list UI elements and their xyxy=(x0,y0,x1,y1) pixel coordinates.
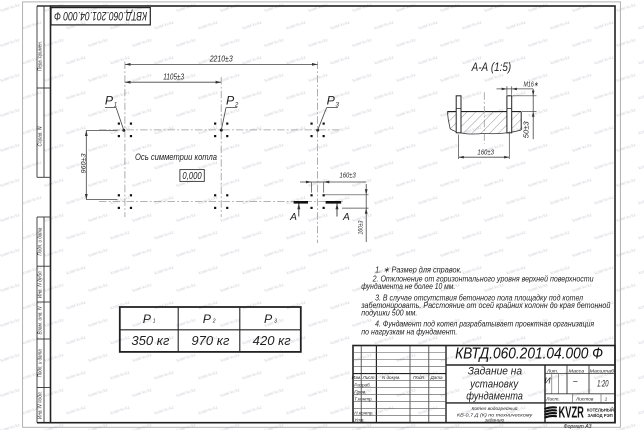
svg-text:А-А (1:5): А-А (1:5) xyxy=(471,60,511,74)
svg-text:50±3: 50±3 xyxy=(521,120,530,138)
svg-text:Справ. N: Справ. N xyxy=(37,126,43,146)
svg-text:160±3: 160±3 xyxy=(339,173,355,180)
svg-text:Задание на: Задание на xyxy=(468,366,522,378)
svg-text:М16∗: М16∗ xyxy=(524,80,539,89)
svg-text:Инв. N дубл.: Инв. N дубл. xyxy=(37,270,43,298)
svg-text:Дата: Дата xyxy=(429,375,443,380)
svg-text:Пров.: Пров. xyxy=(354,389,366,394)
svg-text:Подп. и дата: Подп. и дата xyxy=(37,349,43,377)
svg-text:Формат А3: Формат А3 xyxy=(564,424,592,430)
svg-text:P: P xyxy=(203,312,212,326)
svg-text:Перв. примен.: Перв. примен. xyxy=(37,41,43,71)
svg-text:Разраб.: Разраб. xyxy=(354,382,371,387)
svg-text:970 кг: 970 кг xyxy=(191,334,229,348)
svg-text:1. ∗ Размер для справок.: 1. ∗ Размер для справок. xyxy=(375,266,462,275)
svg-text:Подп.: Подп. xyxy=(413,375,425,380)
svg-text:Т.контр.: Т.контр. xyxy=(354,396,373,401)
svg-text:КВТД.060.201.04.000 Ф: КВТД.060.201.04.000 Ф xyxy=(455,345,603,362)
svg-text:ЗАВОД РЭП: ЗАВОД РЭП xyxy=(587,413,612,418)
svg-text:И: И xyxy=(545,376,552,386)
svg-text:Ось симметрии котла: Ось симметрии котла xyxy=(135,152,217,162)
svg-text:Изм.: Изм. xyxy=(352,375,362,380)
svg-text:1: 1 xyxy=(605,396,608,402)
svg-text:Лист: Лист xyxy=(362,375,375,380)
svg-text:Взам. инв. N: Взам. инв. N xyxy=(37,306,43,334)
svg-text:заданию: заданию xyxy=(484,418,505,423)
svg-text:N докум.: N докум. xyxy=(382,375,401,380)
svg-text:А: А xyxy=(289,212,297,223)
svg-text:1:20: 1:20 xyxy=(597,378,609,388)
svg-text:Масса: Масса xyxy=(569,368,585,374)
svg-text:2210±3: 2210±3 xyxy=(209,55,233,64)
svg-text:фундамента не более 10 мм.: фундамента не более 10 мм. xyxy=(361,282,455,291)
svg-text:350 кг: 350 кг xyxy=(131,334,169,348)
svg-text:Котел водогрейный: Котел водогрейный xyxy=(472,405,518,411)
svg-text:P: P xyxy=(264,312,273,326)
svg-text:фундамента: фундамента xyxy=(466,390,523,402)
svg-text:1: 1 xyxy=(153,318,156,324)
svg-text:3: 3 xyxy=(274,318,277,324)
svg-text:960±3: 960±3 xyxy=(80,153,87,173)
svg-text:по нагрузкам на фундамент.: по нагрузкам на фундамент. xyxy=(361,327,457,336)
svg-text:160±3: 160±3 xyxy=(477,147,494,156)
svg-text:2: 2 xyxy=(212,318,216,324)
svg-text:KVZR: KVZR xyxy=(559,405,585,422)
svg-text:Листов: Листов xyxy=(575,396,594,402)
svg-text:P: P xyxy=(143,312,152,326)
svg-text:P: P xyxy=(327,94,336,108)
svg-text:Инв. N подл.: Инв. N подл. xyxy=(37,391,43,419)
svg-text:–: – xyxy=(572,377,578,386)
svg-text:установку: установку xyxy=(469,379,519,391)
svg-text:КВТД.060.201.04.000 Ф: КВТД.060.201.04.000 Ф xyxy=(54,9,147,23)
svg-text:1105±3: 1105±3 xyxy=(163,72,184,81)
svg-text:160±3: 160±3 xyxy=(357,220,364,234)
svg-text:0,000: 0,000 xyxy=(182,171,202,182)
svg-text:Утв.: Утв. xyxy=(354,417,364,422)
svg-text:КОТЕЛЬНЫЙ: КОТЕЛЬНЫЙ xyxy=(587,408,614,413)
svg-text:Подп. и дата: Подп. и дата xyxy=(37,227,43,255)
svg-text:P: P xyxy=(226,94,235,108)
svg-text:Лит.: Лит. xyxy=(546,368,558,374)
svg-text:Масштаб: Масштаб xyxy=(590,368,615,374)
svg-text:Лист.: Лист. xyxy=(545,396,560,402)
svg-text:А: А xyxy=(342,212,350,223)
svg-text:420 кг: 420 кг xyxy=(253,334,291,348)
svg-text:P: P xyxy=(105,94,114,108)
svg-text:подушки 500 мм.: подушки 500 мм. xyxy=(361,308,417,317)
svg-text:Н.контр.: Н.контр. xyxy=(354,410,373,415)
